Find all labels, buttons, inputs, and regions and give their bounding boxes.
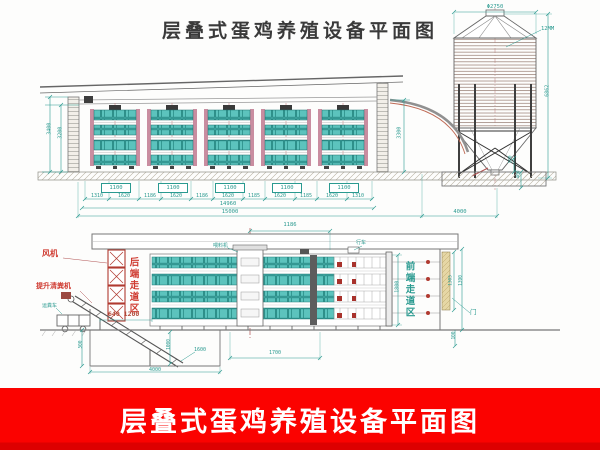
dim-pit-leader: 1600 [194, 348, 206, 354]
label-cart: 运粪车 [42, 304, 57, 310]
dim-cage-width: 1100 [329, 183, 359, 193]
caption-text: 层叠式蛋鸡养殖设备平面图 [120, 400, 480, 439]
dim-cage-height: 1800 [395, 273, 401, 301]
dim-footing: 100 [453, 321, 458, 349]
dim-silo-foundation: 400 [518, 161, 523, 187]
dim-pit-inner: 1000 [168, 330, 173, 358]
dim-pipe-drop: 3300 [397, 119, 403, 147]
dim-chain: 1185 [294, 194, 318, 200]
dim-cage-row: 1700 [255, 351, 295, 357]
dim-inner-height: 3200 [58, 116, 64, 150]
dim-silo-diameter: Φ2750 [473, 4, 517, 10]
silo-foundation [442, 172, 546, 186]
label-front-aisle: 前端走道区 [403, 261, 413, 325]
cage-battery-side [150, 245, 392, 330]
dim-chain: 1186 [190, 194, 214, 200]
dim-chain: 1620 [164, 194, 188, 200]
label-fan: 风机 [42, 250, 58, 259]
conveyor-motor [61, 292, 71, 299]
label-trolley: 行车 [356, 241, 366, 247]
dim-section-top: 1186 [268, 222, 312, 228]
exhaust-unit [84, 96, 93, 103]
label-manure-lifter: 提升清粪机 [36, 283, 71, 291]
section-view [40, 228, 560, 367]
dim-cage-width: 1100 [215, 183, 245, 193]
dim-silo-clearance: 100 [510, 146, 515, 172]
dim-chain: 1310 [85, 194, 109, 200]
dim-chain: 1620 [320, 194, 344, 200]
dim-wall-height: 3400 [47, 112, 53, 146]
label-door: 门 [470, 309, 477, 316]
dim-pit-depth: 500 [80, 330, 85, 358]
dim-cage-width: 1100 [158, 183, 188, 193]
feed-silo [390, 8, 546, 190]
dim-cage-width: 1100 [272, 183, 302, 193]
dim-chain: 1186 [138, 194, 162, 200]
dim-chain: 1310 [346, 194, 370, 200]
manure-cart [57, 309, 90, 332]
dim-chain: 1620 [268, 194, 292, 200]
dim-gap-to-silo: 4000 [440, 209, 480, 215]
dim-cage-width: 1100 [101, 183, 131, 193]
dim-chain: 1185 [242, 194, 266, 200]
dim-chain: 1620 [216, 194, 240, 200]
dim-rear-aisle: 640 1200 [108, 311, 139, 318]
dim-total-outer: 15000 [210, 209, 250, 215]
dim-total-inner: 14960 [208, 201, 248, 207]
dim-door-inner: 1305 [450, 266, 455, 294]
dim-silo-height: 6862 [545, 76, 551, 106]
caption-banner: 层叠式蛋鸡养殖设备平面图 [0, 388, 600, 450]
dim-door-outer: 1390 [460, 266, 465, 294]
dim-chain: 1620 [112, 194, 136, 200]
drawing-page: 层叠式蛋鸡养殖设备平面图 [0, 0, 600, 450]
silo-wall-note: 12MM [541, 26, 571, 32]
label-feeder: 喂料机 [213, 244, 228, 250]
dim-pit-width: 4000 [135, 368, 175, 374]
